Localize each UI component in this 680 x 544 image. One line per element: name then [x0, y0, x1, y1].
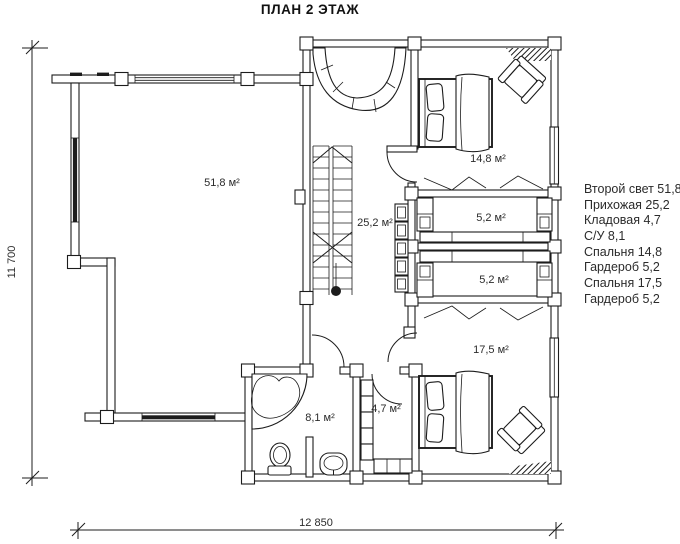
dimension-vertical: 11 700 — [6, 40, 48, 486]
legend-item: Спальня 14,8 — [584, 245, 662, 259]
staircase — [313, 146, 352, 296]
bed-bedroom-top — [419, 74, 492, 151]
sink — [320, 453, 347, 475]
door-bathroom — [312, 335, 344, 367]
room-label-wardrobe-top: 5,2 м² — [476, 212, 506, 224]
legend-item: Гардероб 5,2 — [584, 292, 660, 306]
window-east-top — [550, 127, 559, 184]
bathroom-fixtures — [251, 374, 347, 477]
door-bedroom-top — [387, 146, 417, 182]
room-label-hallway: 25,2 м² — [357, 217, 393, 229]
storage-shelves — [361, 380, 412, 473]
room-label-second-light: 51,8 м² — [204, 177, 240, 189]
partition-wall — [306, 437, 313, 477]
legend-item: Спальня 17,5 — [584, 276, 662, 290]
bed-bedroom-bottom — [419, 371, 492, 453]
dimension-horizontal: 12 850 — [70, 517, 564, 539]
pillow — [426, 113, 444, 141]
legend-item: С/У 8,1 — [584, 229, 625, 243]
legend-item: Гардероб 5,2 — [584, 260, 660, 274]
wardrobe-shelf-bottom — [420, 251, 550, 262]
room-label-bedroom-top: 14,8 м² — [470, 153, 506, 165]
legend-item: Кладовая 4,7 — [584, 213, 661, 227]
room-legend: Второй свет 51,8 Прихожая 25,2 Кладовая … — [584, 182, 680, 306]
corner-hatch-top — [506, 48, 551, 61]
wardrobe-shelf-top — [420, 232, 550, 242]
dimension-height-label: 11 700 — [6, 246, 18, 279]
pillow — [426, 413, 444, 442]
armchair-bedroom-bottom — [497, 406, 547, 456]
toilet — [268, 443, 291, 475]
corner-bathtub — [252, 374, 307, 429]
room-label-bedroom-bottom: 17,5 м² — [473, 344, 509, 356]
room-label-wardrobe-bottom: 5,2 м² — [479, 274, 509, 286]
pillow — [426, 381, 444, 410]
corner-hatch-bottom — [509, 461, 551, 474]
door-storage — [372, 374, 402, 404]
plan-title: ПЛАН 2 ЭТАЖ — [261, 2, 359, 17]
dimension-width-label: 12 850 — [299, 517, 333, 529]
armchair-bedroom-top — [498, 54, 548, 104]
floor-plan-page: ПЛАН 2 ЭТАЖ 11 700 12 850 — [0, 0, 680, 544]
room-label-bathroom: 8,1 м² — [305, 412, 335, 424]
pillow — [426, 83, 444, 111]
legend-item: Прихожая 25,2 — [584, 198, 670, 212]
sofa-hallway — [313, 48, 406, 112]
legend-item: Второй свет 51,8 — [584, 182, 680, 196]
room-label-storage: 4,7 м² — [371, 403, 401, 415]
stair-direction-start-dot — [331, 286, 341, 296]
window-east-bottom — [550, 338, 559, 397]
hallway-cabinets — [395, 204, 408, 292]
floor-plan-canvas: ПЛАН 2 ЭТАЖ 11 700 12 850 — [0, 0, 680, 544]
